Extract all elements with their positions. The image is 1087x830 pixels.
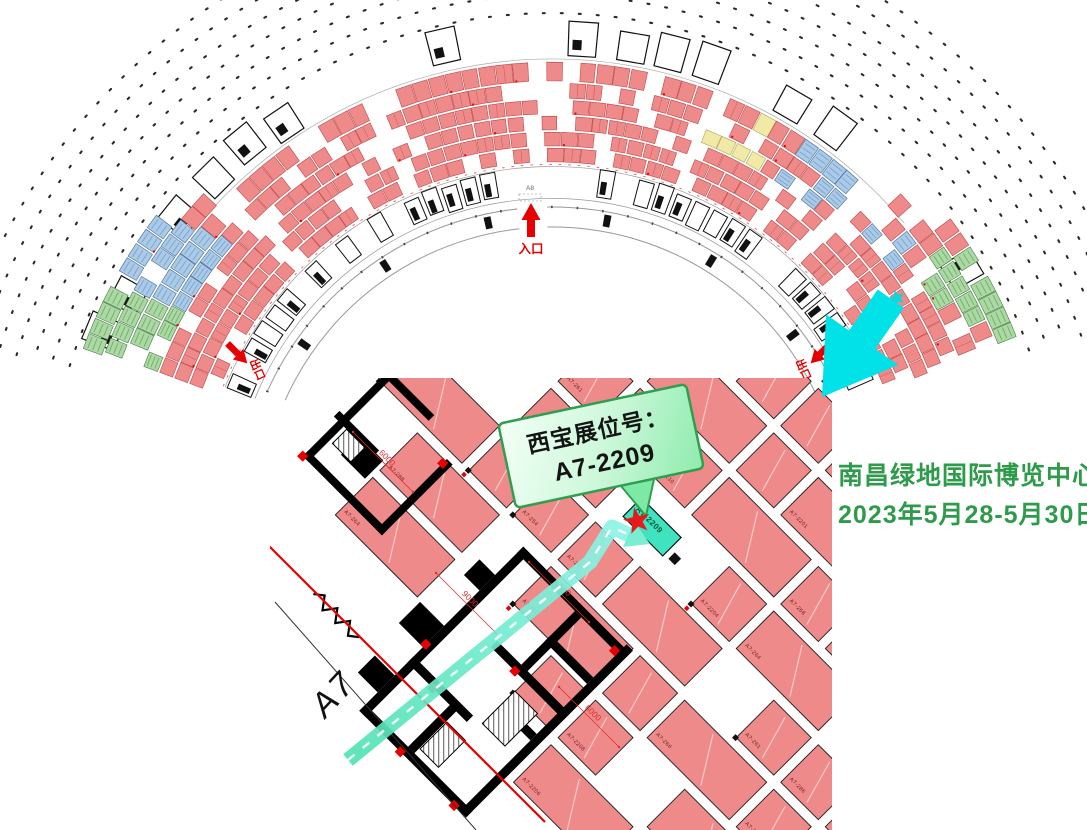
booth xyxy=(542,116,557,130)
booth-label: A7-254 xyxy=(832,643,850,661)
corridor-structure xyxy=(633,180,654,209)
booth xyxy=(781,477,901,597)
booth xyxy=(580,149,596,164)
wall xyxy=(359,704,472,817)
perimeter-structure xyxy=(654,32,690,72)
hall-label: A7 xyxy=(302,664,364,726)
booth xyxy=(425,132,444,150)
booth xyxy=(775,189,796,209)
booth xyxy=(457,124,474,140)
booth xyxy=(462,69,480,90)
perimeter-structure xyxy=(617,31,650,64)
booth xyxy=(619,89,636,106)
booth xyxy=(522,101,537,115)
squiggle-wall xyxy=(310,589,363,642)
booth xyxy=(427,148,446,166)
hall-marker-label: A8 xyxy=(526,185,534,192)
booth xyxy=(683,105,703,124)
booth xyxy=(629,69,648,90)
booth xyxy=(547,62,563,81)
booth xyxy=(624,123,642,140)
entrance-label: 入口 xyxy=(518,242,543,256)
booth xyxy=(446,159,465,176)
venue-name: 南昌绿地国际博览中心 xyxy=(838,461,1087,490)
booth xyxy=(435,95,454,113)
booth xyxy=(580,63,596,83)
escalator-icon xyxy=(603,215,612,228)
booth xyxy=(547,148,563,162)
booth xyxy=(613,67,631,88)
booth-label: A7-2210 xyxy=(832,821,853,830)
booth xyxy=(508,117,524,132)
booth xyxy=(471,105,488,121)
booth xyxy=(478,66,496,87)
booth xyxy=(627,140,645,157)
escalator-icon xyxy=(484,216,493,229)
escalator-icon xyxy=(705,254,717,268)
booth xyxy=(578,133,595,148)
booth xyxy=(505,101,522,116)
booth xyxy=(406,121,425,139)
perimeter-structure xyxy=(425,26,461,66)
perimeter-structure xyxy=(568,21,599,57)
booth xyxy=(589,102,606,117)
booth xyxy=(596,65,614,85)
booth xyxy=(654,114,673,132)
booth xyxy=(430,164,449,182)
booth xyxy=(510,133,527,148)
booth xyxy=(575,117,592,132)
escalator-icon xyxy=(379,259,391,273)
booth xyxy=(825,611,945,731)
perimeter-structure xyxy=(773,85,812,124)
booth xyxy=(422,116,440,133)
booth xyxy=(545,132,561,146)
booth xyxy=(622,107,639,123)
booth xyxy=(460,140,478,157)
booth xyxy=(411,154,430,172)
perimeter-structure xyxy=(692,41,731,84)
escalator-icon xyxy=(786,329,800,342)
overview-map xyxy=(0,0,1087,400)
booth xyxy=(606,104,624,120)
booth xyxy=(445,72,464,94)
booth xyxy=(667,100,686,118)
booth xyxy=(825,789,900,830)
perimeter-structure xyxy=(264,103,304,144)
booth xyxy=(672,136,691,154)
booth xyxy=(661,166,680,184)
escalator-icon xyxy=(297,338,311,351)
booth xyxy=(443,144,462,161)
booth xyxy=(888,194,912,218)
floorplan-canvas: A8 入口 出口 出口 A7-266A7-264A7-268A7-261A7-2… xyxy=(0,0,1087,830)
venue-dates: 2023年5月28-5月30日 xyxy=(838,500,1087,529)
booth xyxy=(441,128,459,145)
corridor-structure xyxy=(336,236,362,264)
booth xyxy=(641,127,659,144)
booth xyxy=(474,121,491,137)
booth xyxy=(512,63,528,83)
booth xyxy=(491,119,507,134)
perimeter-structure xyxy=(814,106,857,151)
booth xyxy=(485,86,503,103)
expo-floorplan-page: A8 入口 出口 出口 A7-266A7-264A7-268A7-261A7-2… xyxy=(0,0,1087,830)
booth xyxy=(692,86,713,109)
booth xyxy=(479,153,497,169)
booth xyxy=(438,112,457,129)
booth xyxy=(414,170,433,188)
booth xyxy=(629,157,646,174)
